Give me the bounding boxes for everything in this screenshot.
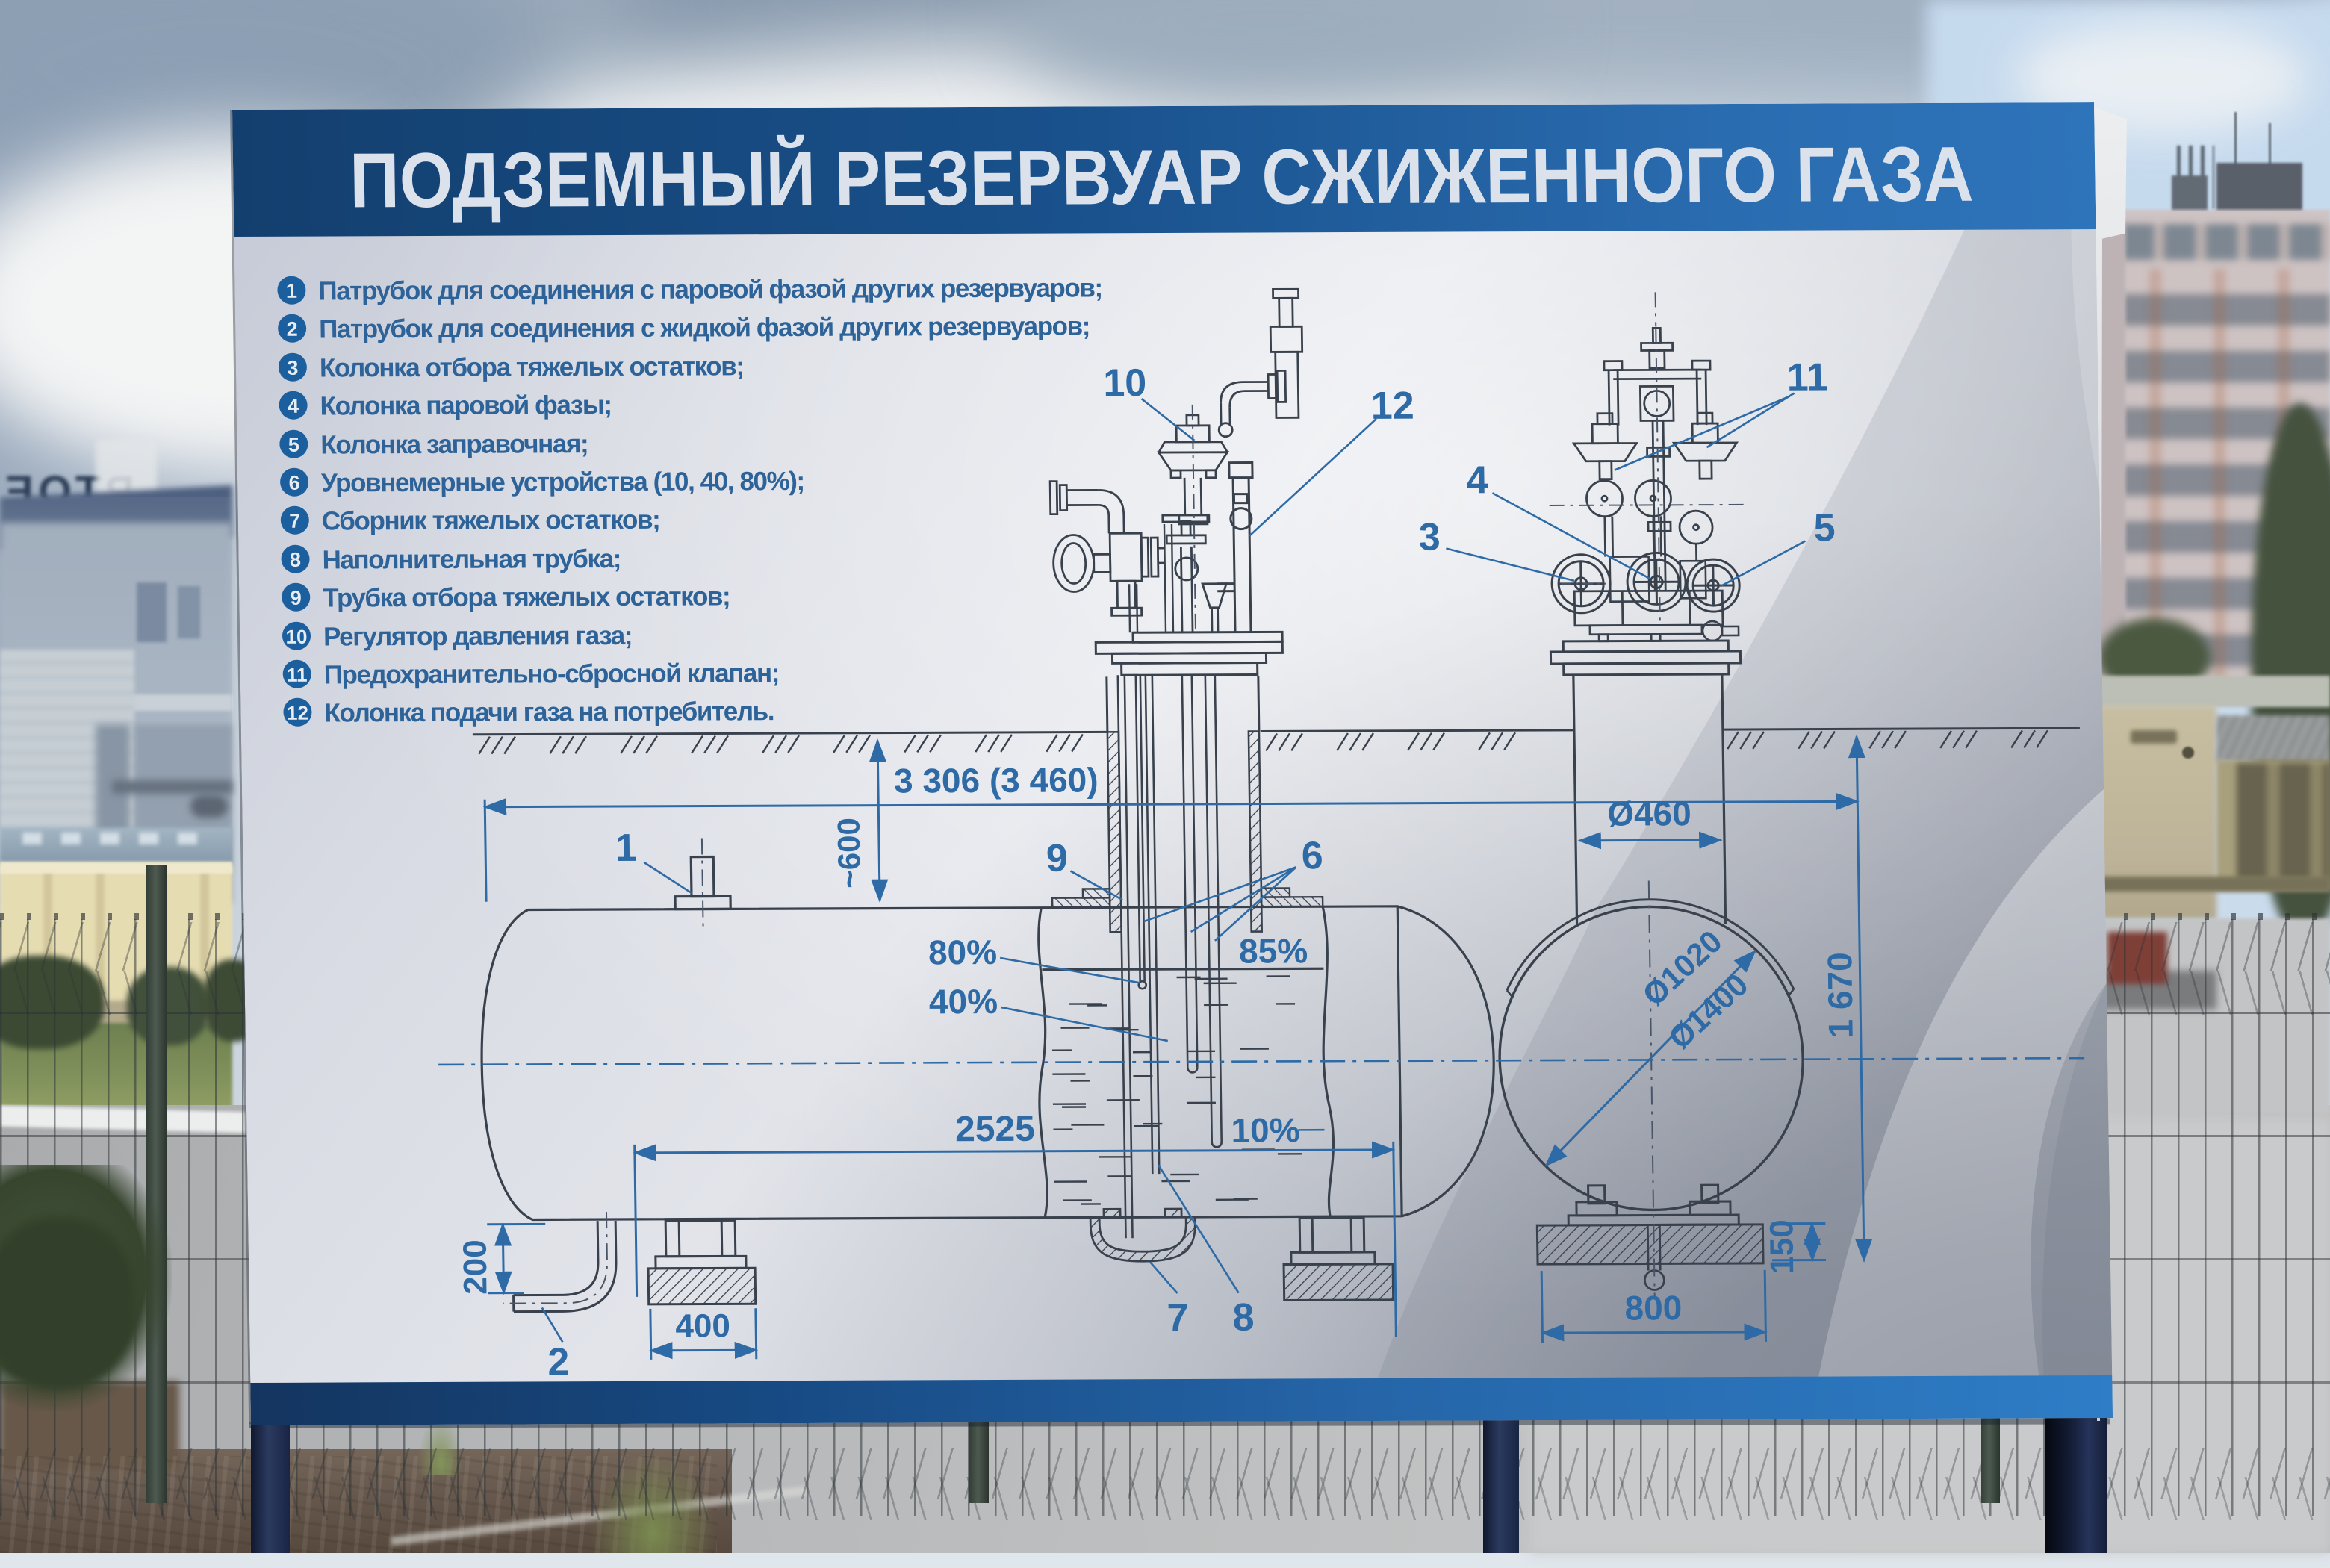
svg-text:10%: 10% (1231, 1110, 1300, 1149)
svg-text:2: 2 (547, 1340, 570, 1384)
svg-text:Сборник тяжелых остатков;: Сборник тяжелых остатков; (322, 505, 660, 536)
svg-text:1: 1 (286, 280, 297, 302)
svg-text:2: 2 (286, 318, 297, 340)
svg-text:1 670: 1 670 (1820, 952, 1860, 1038)
svg-text:7: 7 (289, 510, 300, 532)
svg-text:Патрубок для соединения с паро: Патрубок для соединения с паровой фазой … (318, 273, 1102, 305)
svg-text:Колонка отбора тяжелых остатко: Колонка отбора тяжелых остатков; (320, 352, 744, 382)
svg-text:Регулятор давления газа;: Регулятор давления газа; (323, 621, 633, 652)
svg-text:~600: ~600 (831, 818, 867, 889)
svg-text:2525: 2525 (955, 1110, 1036, 1149)
svg-text:150: 150 (1763, 1219, 1801, 1275)
svg-text:3: 3 (287, 357, 298, 379)
svg-text:400: 400 (675, 1307, 730, 1344)
svg-text:10: 10 (1103, 361, 1147, 405)
svg-text:Патрубок для соединения с жидк: Патрубок для соединения с жидкой фазой д… (319, 311, 1090, 343)
svg-text:4: 4 (288, 395, 299, 417)
svg-text:8: 8 (290, 549, 301, 571)
svg-text:80%: 80% (928, 933, 998, 971)
svg-text:9: 9 (291, 587, 302, 609)
svg-text:5: 5 (1813, 506, 1836, 550)
svg-text:Колонка паровой фазы;: Колонка паровой фазы; (320, 391, 612, 421)
svg-text:Уровнемерные устройства (10, 4: Уровнемерные устройства (10, 40, 80%); (321, 467, 804, 498)
svg-text:3 306 (3 460): 3 306 (3 460) (894, 760, 1099, 800)
svg-text:Колонка заправочная;: Колонка заправочная; (320, 429, 588, 459)
svg-text:5: 5 (288, 434, 299, 456)
svg-text:4: 4 (1466, 458, 1488, 502)
svg-text:11: 11 (1786, 355, 1828, 399)
svg-text:Предохранительно-сбросной клап: Предохранительно-сбросной клапан; (323, 659, 779, 689)
svg-text:85%: 85% (1239, 931, 1308, 970)
svg-text:12: 12 (1370, 385, 1414, 428)
svg-text:Наполнительная трубка;: Наполнительная трубка; (322, 544, 621, 575)
svg-text:Колонка подачи газа на потреби: Колонка подачи газа на потребитель. (324, 697, 774, 727)
svg-text:12: 12 (287, 702, 308, 724)
svg-text:7: 7 (1166, 1296, 1189, 1340)
svg-text:3: 3 (1418, 516, 1441, 559)
svg-text:ПОДЗЕМНЫЙ РЕЗЕРВУАР СЖИЖЕННОГО: ПОДЗЕМНЫЙ РЕЗЕРВУАР СЖИЖЕННОГО ГАЗА (349, 131, 1975, 225)
svg-text:11: 11 (287, 664, 308, 686)
svg-text:9: 9 (1046, 837, 1068, 880)
svg-text:10: 10 (285, 626, 307, 648)
svg-text:6: 6 (288, 472, 299, 494)
svg-text:Трубка отбора тяжелых остатков: Трубка отбора тяжелых остатков; (323, 582, 730, 612)
svg-text:40%: 40% (929, 982, 998, 1021)
svg-text:1: 1 (615, 827, 637, 870)
svg-text:200: 200 (457, 1239, 494, 1295)
svg-text:800: 800 (1624, 1288, 1682, 1327)
svg-text:6: 6 (1301, 834, 1323, 877)
svg-text:8: 8 (1232, 1296, 1255, 1340)
svg-text:Ø460: Ø460 (1607, 794, 1691, 833)
